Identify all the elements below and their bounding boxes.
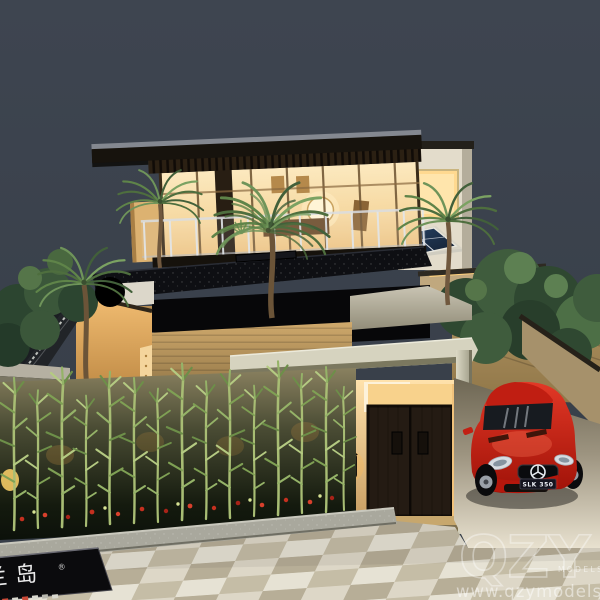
entry-door [368,406,452,516]
watermark-logo: QZY [459,523,591,591]
door-handle-right [418,432,428,454]
scene-art: SLK 350 [0,0,600,600]
door-handle-left [392,432,402,454]
door-transom [368,384,452,406]
watermark: QZY MODELS www.qzymodels.com [456,523,600,600]
watermark-url: www.qzymodels.com [456,582,600,600]
license-plate-text: SLK 350 [523,482,554,489]
watermark-logo-sub: MODELS [558,565,600,574]
model-photo: SLK 350 [0,0,600,600]
bamboo-hedge [0,361,356,540]
sign-registered-mark: ® [57,562,66,572]
